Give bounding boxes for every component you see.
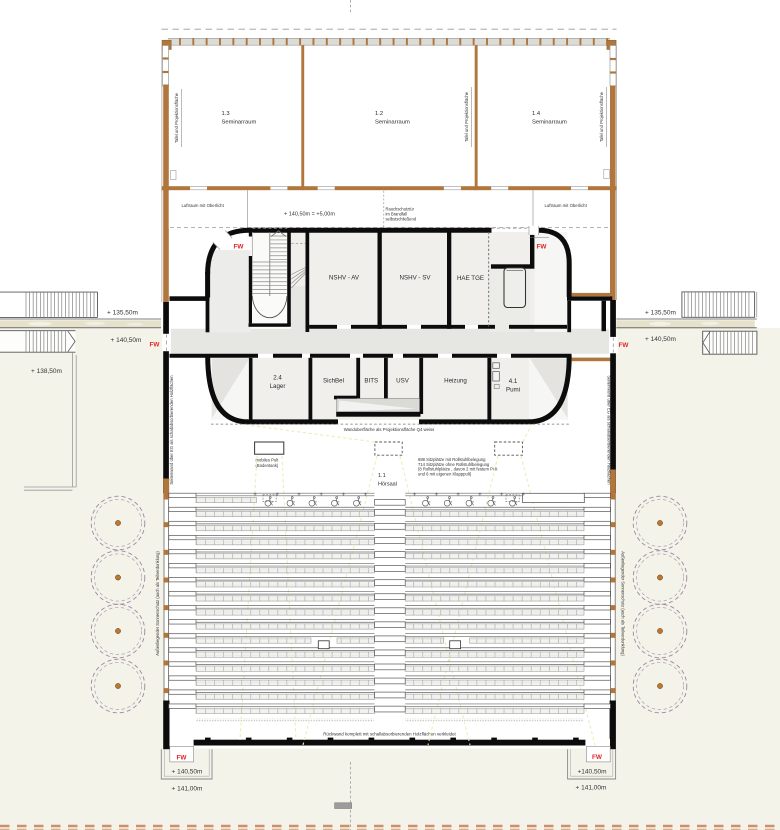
svg-text:Luftraum mit Oberlicht: Luftraum mit Oberlicht xyxy=(182,203,225,208)
svg-text:HAE TGE: HAE TGE xyxy=(457,275,484,282)
svg-text:4.1: 4.1 xyxy=(509,378,518,385)
svg-text:und 6 mit eigenen Klapppult): und 6 mit eigenen Klapppult) xyxy=(418,471,472,476)
svg-text:Tafel und Projektionsfläche: Tafel und Projektionsfläche xyxy=(174,92,179,143)
svg-text:1.2: 1.2 xyxy=(375,111,383,117)
svg-text:Pumi: Pumi xyxy=(506,387,520,394)
svg-text:Wandoberfläche als Projektion: Wandoberfläche als Projektionsfläche Q4 … xyxy=(344,427,435,432)
svg-text:+ 141,00m: + 141,00m xyxy=(172,786,203,793)
svg-text:Hörsaal: Hörsaal xyxy=(378,482,397,488)
svg-text:FW: FW xyxy=(150,342,161,349)
svg-text:Außenliegender Sonnenschutz: Außenliegender Sonnenschutz (auch als Te… xyxy=(155,551,160,656)
svg-text:(Bodentank): (Bodentank) xyxy=(256,463,279,468)
svg-text:FW: FW xyxy=(592,754,603,761)
svg-text:Rückwand komplett mit schal: Rückwand komplett mit schallabsorbierend… xyxy=(323,731,456,736)
svg-text:2.4: 2.4 xyxy=(273,375,282,382)
svg-text:+ 140,50m: + 140,50m xyxy=(172,769,203,776)
svg-text:1.1: 1.1 xyxy=(378,473,386,479)
svg-text:selbstschließend: selbstschließend xyxy=(386,217,417,222)
svg-text:Seminarraum: Seminarraum xyxy=(532,120,567,126)
svg-text:FW: FW xyxy=(619,342,630,349)
svg-text:1.4: 1.4 xyxy=(532,111,541,117)
svg-text:NSHV - AV: NSHV - AV xyxy=(329,275,360,282)
svg-text:+ 140,50m: + 140,50m xyxy=(111,337,142,344)
svg-text:Tafel und Projektionsfläche: Tafel und Projektionsfläche xyxy=(464,91,469,142)
svg-text:BITS: BITS xyxy=(364,378,378,385)
svg-text:NSHV - SV: NSHV - SV xyxy=(400,275,432,282)
svg-text:Außenliegender Sonnenschutz: Außenliegender Sonnenschutz (auch als Te… xyxy=(620,551,625,656)
svg-text:1.3: 1.3 xyxy=(222,111,230,117)
svg-text:+ 135,50m: + 135,50m xyxy=(645,309,676,316)
svg-text:mobiles Pult: mobiles Pult xyxy=(256,458,280,463)
svg-text:+ 140,50m = +5,00m: + 140,50m = +5,00m xyxy=(284,212,335,218)
svg-text:Lager: Lager xyxy=(270,383,286,390)
svg-text:USV: USV xyxy=(396,378,410,385)
svg-text:+140,50m: +140,50m xyxy=(578,769,607,776)
svg-text:Luftraum mit Oberlicht: Luftraum mit Oberlicht xyxy=(545,203,588,208)
svg-text:Seitenwand über EG als schalla: Seitenwand über EG als schallabsorbieren… xyxy=(169,375,174,485)
svg-text:Seminarraum: Seminarraum xyxy=(375,120,410,126)
svg-text:FW: FW xyxy=(177,754,188,761)
svg-text:Seminarraum: Seminarraum xyxy=(222,120,257,126)
svg-text:SichBel: SichBel xyxy=(323,378,344,385)
svg-text:+ 141,00m: + 141,00m xyxy=(576,785,607,792)
svg-text:+ 140,50m: + 140,50m xyxy=(645,336,676,343)
svg-text:FW: FW xyxy=(234,244,245,251)
svg-text:+ 135,50m: + 135,50m xyxy=(107,309,138,316)
svg-text:FW: FW xyxy=(537,244,548,251)
svg-text:Seitenwand über EG als schalla: Seitenwand über EG als schallabsorbieren… xyxy=(606,375,611,485)
svg-text:+ 138,50m: + 138,50m xyxy=(31,368,62,375)
svg-text:Tafel und Projektionsfläche: Tafel und Projektionsfläche xyxy=(599,91,604,142)
svg-text:Heizung: Heizung xyxy=(444,378,467,385)
